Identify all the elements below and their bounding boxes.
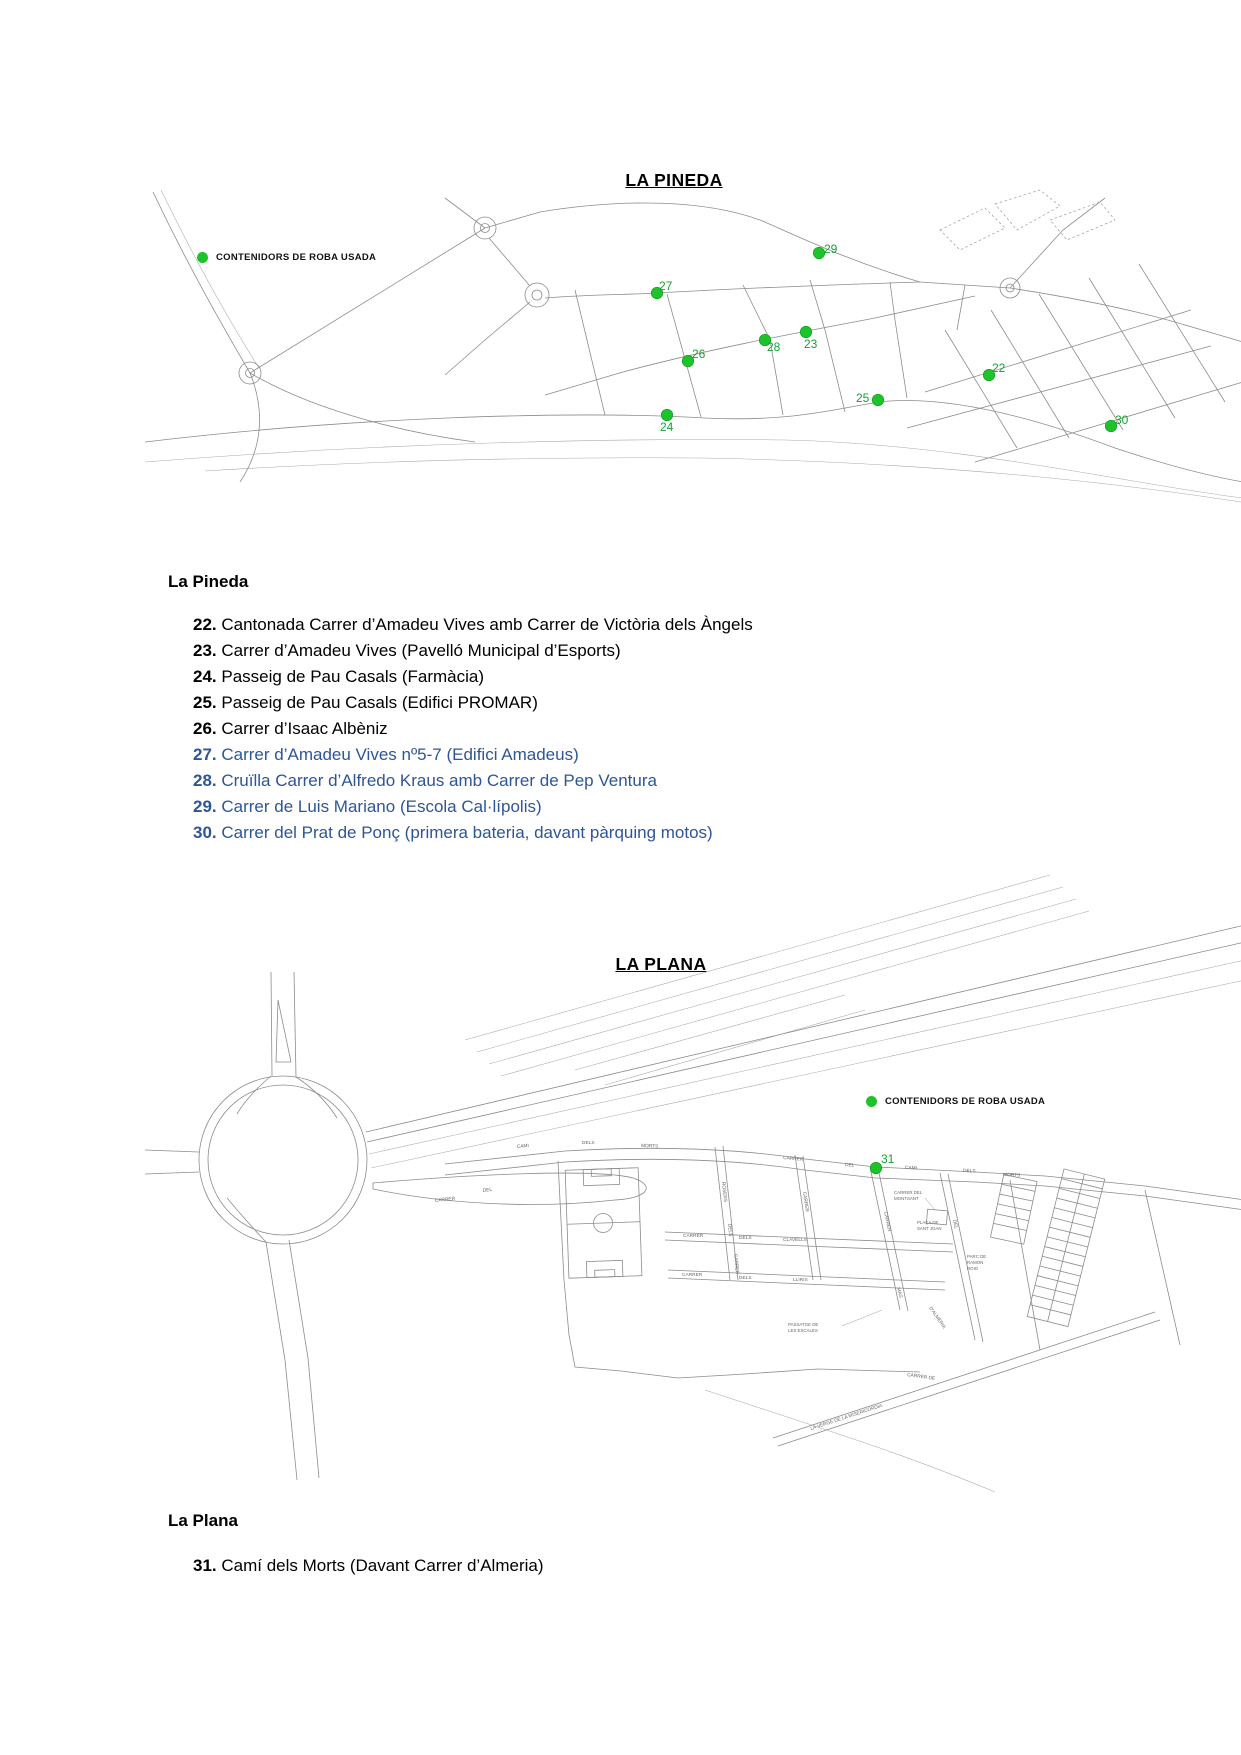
- container-marker-label-29: 29: [824, 243, 837, 256]
- container-marker-label-25: 25: [856, 392, 869, 405]
- container-marker-label-26: 26: [692, 348, 705, 361]
- container-marker-label-31: 31: [881, 1153, 894, 1166]
- container-marker-label-23: 23: [804, 338, 817, 351]
- container-marker-label-30: 30: [1115, 414, 1128, 427]
- container-markers-layer: 29272328262225243031: [0, 0, 1241, 1755]
- container-marker-25: [872, 394, 884, 406]
- container-marker-label-24: 24: [660, 421, 673, 434]
- container-marker-label-28: 28: [767, 341, 780, 354]
- document-page: { "colors":{ "green":"#1dc32b", "label-g…: [0, 0, 1241, 1755]
- container-marker-label-27: 27: [659, 280, 672, 293]
- container-marker-label-22: 22: [992, 362, 1005, 375]
